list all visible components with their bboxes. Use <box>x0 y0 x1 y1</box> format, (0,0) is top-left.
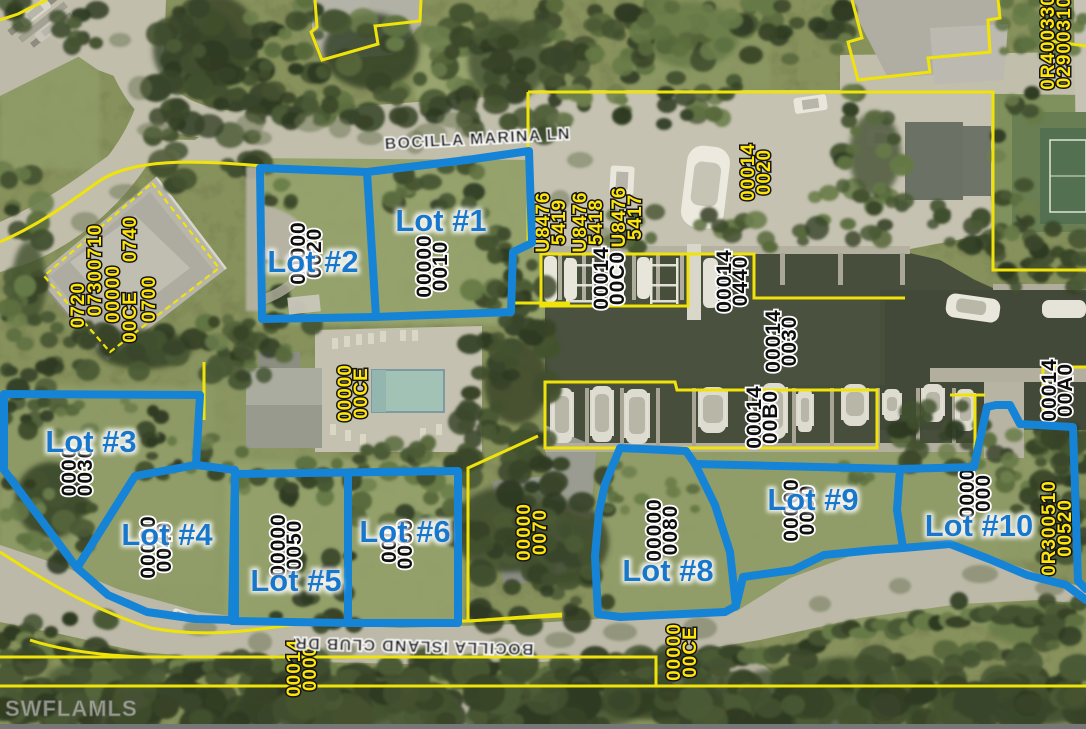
svg-text:0020: 0020 <box>754 149 775 195</box>
svg-text:Lot #10: Lot #10 <box>925 508 1034 543</box>
svg-text:5419: 5419 <box>549 199 570 245</box>
svg-text:00B0: 00B0 <box>759 390 782 444</box>
svg-text:0010: 0010 <box>429 241 452 292</box>
svg-text:Lot #9: Lot #9 <box>767 482 858 517</box>
svg-text:SWFLAMLS: SWFLAMLS <box>5 696 138 721</box>
svg-text:00C0: 00C0 <box>606 251 629 305</box>
svg-text:5417: 5417 <box>625 194 646 240</box>
svg-text:Lot #2: Lot #2 <box>267 244 358 279</box>
svg-text:5418: 5418 <box>586 199 607 245</box>
svg-text:Lot #4: Lot #4 <box>121 517 213 552</box>
svg-text:0440: 0440 <box>729 256 752 307</box>
svg-text:Lot #1: Lot #1 <box>395 203 486 238</box>
svg-text:0740: 0740 <box>120 216 141 262</box>
svg-text:0070: 0070 <box>530 509 551 555</box>
svg-text:00CE: 00CE <box>120 291 141 343</box>
svg-text:Lot #5: Lot #5 <box>250 563 341 598</box>
svg-text:Lot #6: Lot #6 <box>359 514 450 549</box>
svg-text:0030: 0030 <box>778 316 801 367</box>
svg-text:0700: 0700 <box>139 276 160 322</box>
svg-text:00A0: 00A0 <box>1054 363 1077 417</box>
svg-text:0080: 0080 <box>659 505 682 556</box>
svg-text:000: 000 <box>972 474 995 512</box>
svg-text:Lot #8: Lot #8 <box>622 553 713 588</box>
svg-text:02900310: 02900310 <box>1054 0 1075 88</box>
svg-text:00CE: 00CE <box>351 367 372 419</box>
svg-text:Lot #3: Lot #3 <box>45 424 136 459</box>
svg-text:00CE: 00CE <box>680 626 701 678</box>
